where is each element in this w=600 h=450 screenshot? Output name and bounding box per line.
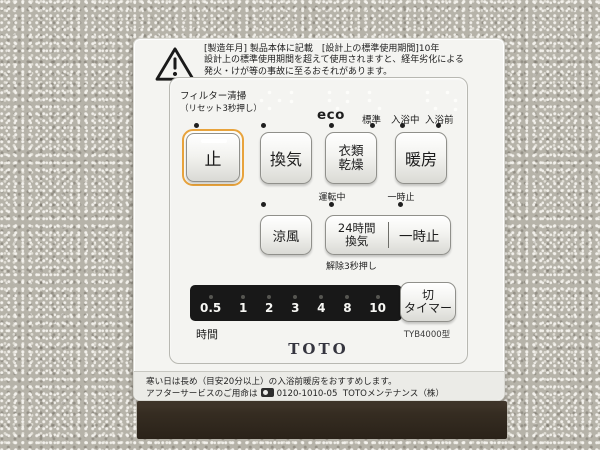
timer-led: [345, 295, 349, 299]
ventilation-button[interactable]: 換気: [260, 132, 312, 184]
pause-button[interactable]: 一時止: [389, 225, 451, 245]
stop-button[interactable]: 止: [186, 133, 240, 182]
timer-cell: 10: [369, 295, 386, 314]
pause-status-label: 一時止: [384, 190, 418, 203]
timer-led: [293, 295, 297, 299]
standard-led: [370, 123, 375, 128]
timer-cell: 8: [343, 295, 351, 314]
model-number: TYB4000型: [398, 328, 456, 340]
wall-trim: [137, 401, 507, 439]
bathroom-wall-scene: [製造年月] 製品本体に記載 [設計上の標準使用期間]10年 設計上の標準使用期…: [0, 0, 600, 450]
operating-label: 運転中: [315, 190, 349, 203]
cool-breeze-led: [261, 202, 266, 207]
timer-display: 0.5 1 2 3 4 8 10: [190, 285, 402, 321]
control-area: フィルター清掃 （リセット3秒押し） eco 標準 入浴中 入浴前 止 換気 衣…: [169, 77, 468, 364]
heating-button[interactable]: 暖房: [395, 132, 447, 184]
warning-line-2: 設計上の標準使用期間を超えて使用されますと、経年劣化による: [204, 55, 500, 66]
freedial-phone-icon: [261, 388, 274, 397]
pause-led: [398, 202, 403, 207]
timer-led: [319, 295, 323, 299]
brand-logo: TOTO: [170, 340, 467, 358]
service-prefix: アフターサービスのご用命は: [146, 389, 258, 399]
eco-label: eco: [317, 107, 345, 123]
vent-24h-button[interactable]: 24時間 換気: [326, 222, 388, 248]
control-panel: [製造年月] 製品本体に記載 [設計上の標準使用期間]10年 設計上の標準使用期…: [133, 38, 505, 401]
timer-led: [376, 295, 380, 299]
timer-cell: 1: [239, 295, 247, 314]
cool-breeze-button[interactable]: 涼風: [260, 215, 312, 255]
filter-led: [194, 123, 199, 128]
timer-cell: 3: [291, 295, 299, 314]
timer-cell: 2: [265, 295, 273, 314]
footer-line-1: 寒い日は長め（目安20分以上）の入浴前暖房をおすすめします。: [146, 376, 498, 388]
timer-led: [209, 295, 213, 299]
clothes-drying-button[interactable]: 衣類 乾燥: [325, 132, 377, 184]
timer-cell: 4: [317, 295, 325, 314]
in-bath-led: [400, 123, 405, 128]
operating-led: [329, 202, 334, 207]
filter-reset-label: （リセット3秒押し）: [180, 103, 262, 115]
timer-cell: 0.5: [200, 295, 221, 314]
service-company: TOTOメンテナンス（株）: [343, 389, 444, 399]
timer-led: [267, 295, 271, 299]
ventilation-led: [261, 123, 266, 128]
warning-text: [製造年月] 製品本体に記載 [設計上の標準使用期間]10年 設計上の標準使用期…: [204, 44, 500, 78]
warning-line-1: [製造年月] 製品本体に記載 [設計上の標準使用期間]10年: [204, 44, 500, 55]
service-phone: 0120-1010-05: [277, 389, 338, 399]
footer-line-2: アフターサービスのご用命は0120-1010-05 TOTOメンテナンス（株）: [146, 388, 498, 400]
vent-24h-pause-button-group: 24時間 換気 一時止: [325, 215, 451, 255]
footer-notice: 寒い日は長め（目安20分以上）の入浴前暖房をおすすめします。 アフターサービスの…: [134, 371, 504, 400]
timer-led: [241, 295, 245, 299]
braille-dots: [170, 78, 173, 81]
pre-bath-led: [436, 123, 441, 128]
release-hold-label: 解除3秒押し: [326, 259, 377, 272]
stop-button-ring: 止: [182, 129, 244, 186]
in-bath-label: 入浴中: [391, 112, 420, 126]
off-timer-button[interactable]: 切 タイマー: [400, 282, 456, 322]
filter-clean-label: フィルター清掃 （リセット3秒押し）: [180, 91, 262, 115]
eco-led: [329, 123, 334, 128]
